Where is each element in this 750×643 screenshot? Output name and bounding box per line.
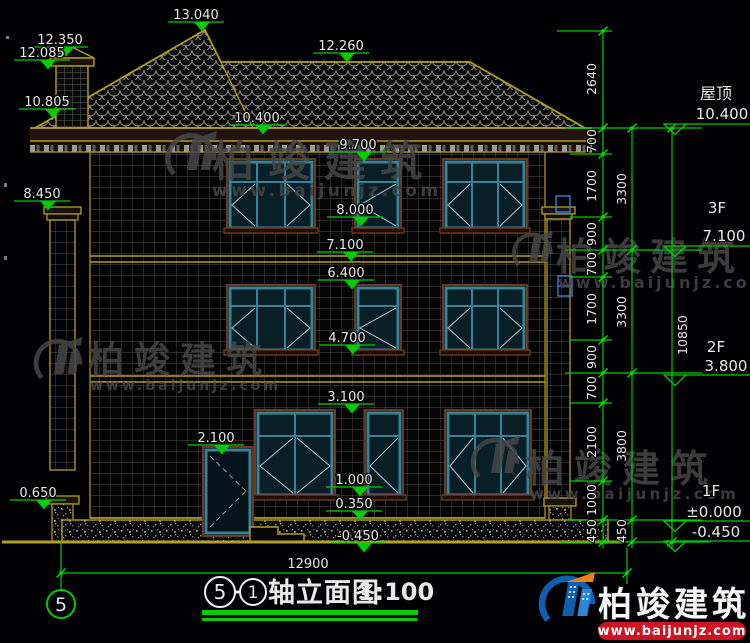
window-3f-right [440,159,530,233]
mark-peak: 13.040 [173,8,219,23]
mark-3f-level: 7.100 [326,238,363,253]
floor-1f-zero: ±0.000 [686,503,742,521]
dim-value: 450 [584,519,599,543]
mark-win3-top: 9.700 [339,138,376,153]
mark-ridge: 12.260 [318,39,364,54]
floor-2f-elevation: 3.800 [705,357,748,375]
drawing-title: 5 1 轴立面图 1:100 [202,577,434,621]
roof-label: 屋顶 [700,84,732,103]
dim-value: 900 [584,345,599,369]
floor-1f-label: 1F [702,482,720,500]
mark-win1-top: 3.100 [327,390,364,405]
dim-value: 1700 [584,170,599,202]
brand-logo-text: 柏竣建筑 [598,585,750,625]
dim-value: 3300 [614,296,629,328]
floor-3f-elevation: 7.100 [703,227,746,245]
brand-logo: 柏竣建筑 www.baijunjz.com [542,572,750,640]
dim-value: 700 [584,376,599,400]
window-2f-right [440,285,530,355]
dim-value: 700 [584,129,599,153]
dim-value: 2100 [584,426,599,458]
brand-url-text: www.baijunjz.com [598,624,747,639]
dim-value: 3800 [614,430,629,462]
mark-win2-top: 6.400 [327,266,364,281]
watermark-brand: 柏竣建筑 [212,137,436,186]
mark-pedestal: 0.650 [19,486,56,501]
floor-3f-label: 3F [708,199,726,217]
title-axis-from: 5 [214,580,227,604]
left-column [44,207,81,470]
window-1f-left [252,410,338,500]
window-1f-right [442,410,534,500]
mark-eave: 10.400 [234,111,280,126]
entry-door [203,447,253,536]
title-scale: 1:100 [358,578,434,606]
cad-elevation-canvas: 柏竣建筑 www.baijunjz.com 柏竣建筑 www.baijunjz.… [0,0,750,643]
axis-number: 5 [55,594,67,616]
foundation [62,520,608,542]
mark-plinth: 0.350 [335,497,372,512]
overall-width-dim: 12900 [287,557,328,572]
elevation-drawing: 柏竣建筑 www.baijunjz.com 柏竣建筑 www.baijunjz.… [0,0,750,643]
mark-door-top: 2.100 [197,431,234,446]
roof [35,30,585,128]
mark-win1-bottom: 1.000 [335,473,372,488]
watermark-brand: 柏竣建筑 [88,340,272,381]
mark-win3-bottom: 8.000 [336,203,373,218]
plot-specks [4,36,9,260]
dim-value: 10850 [675,315,690,355]
floor-2f-label: 2F [707,338,725,356]
floor-1f-below: -0.450 [692,523,740,541]
dim-value: 700 [584,252,599,276]
mark-column-cap: 8.450 [23,187,60,202]
dim-value: 1700 [584,293,599,325]
dim-value: 1000 [584,484,599,516]
mark-eave-left: 10.805 [24,95,70,110]
dim-value: 900 [584,222,599,246]
mark-chimney-cap: 12.085 [19,46,65,61]
roof-elevation: 10.400 [696,105,749,123]
dim-value: 2640 [584,63,599,95]
mark-win2-bottom: 4.700 [328,331,365,346]
axis-bubble: 5 [47,590,75,618]
dim-value: 3300 [614,173,629,205]
dim-value: 450 [614,519,629,543]
mark-ground: -0.450 [337,529,379,544]
watermark-url: www.baijunjz.com [212,181,442,201]
brand-logo-icon [542,572,595,620]
title-axis-to: 1 [248,583,259,603]
watermark-url: www.baijunjz.com [90,378,281,394]
